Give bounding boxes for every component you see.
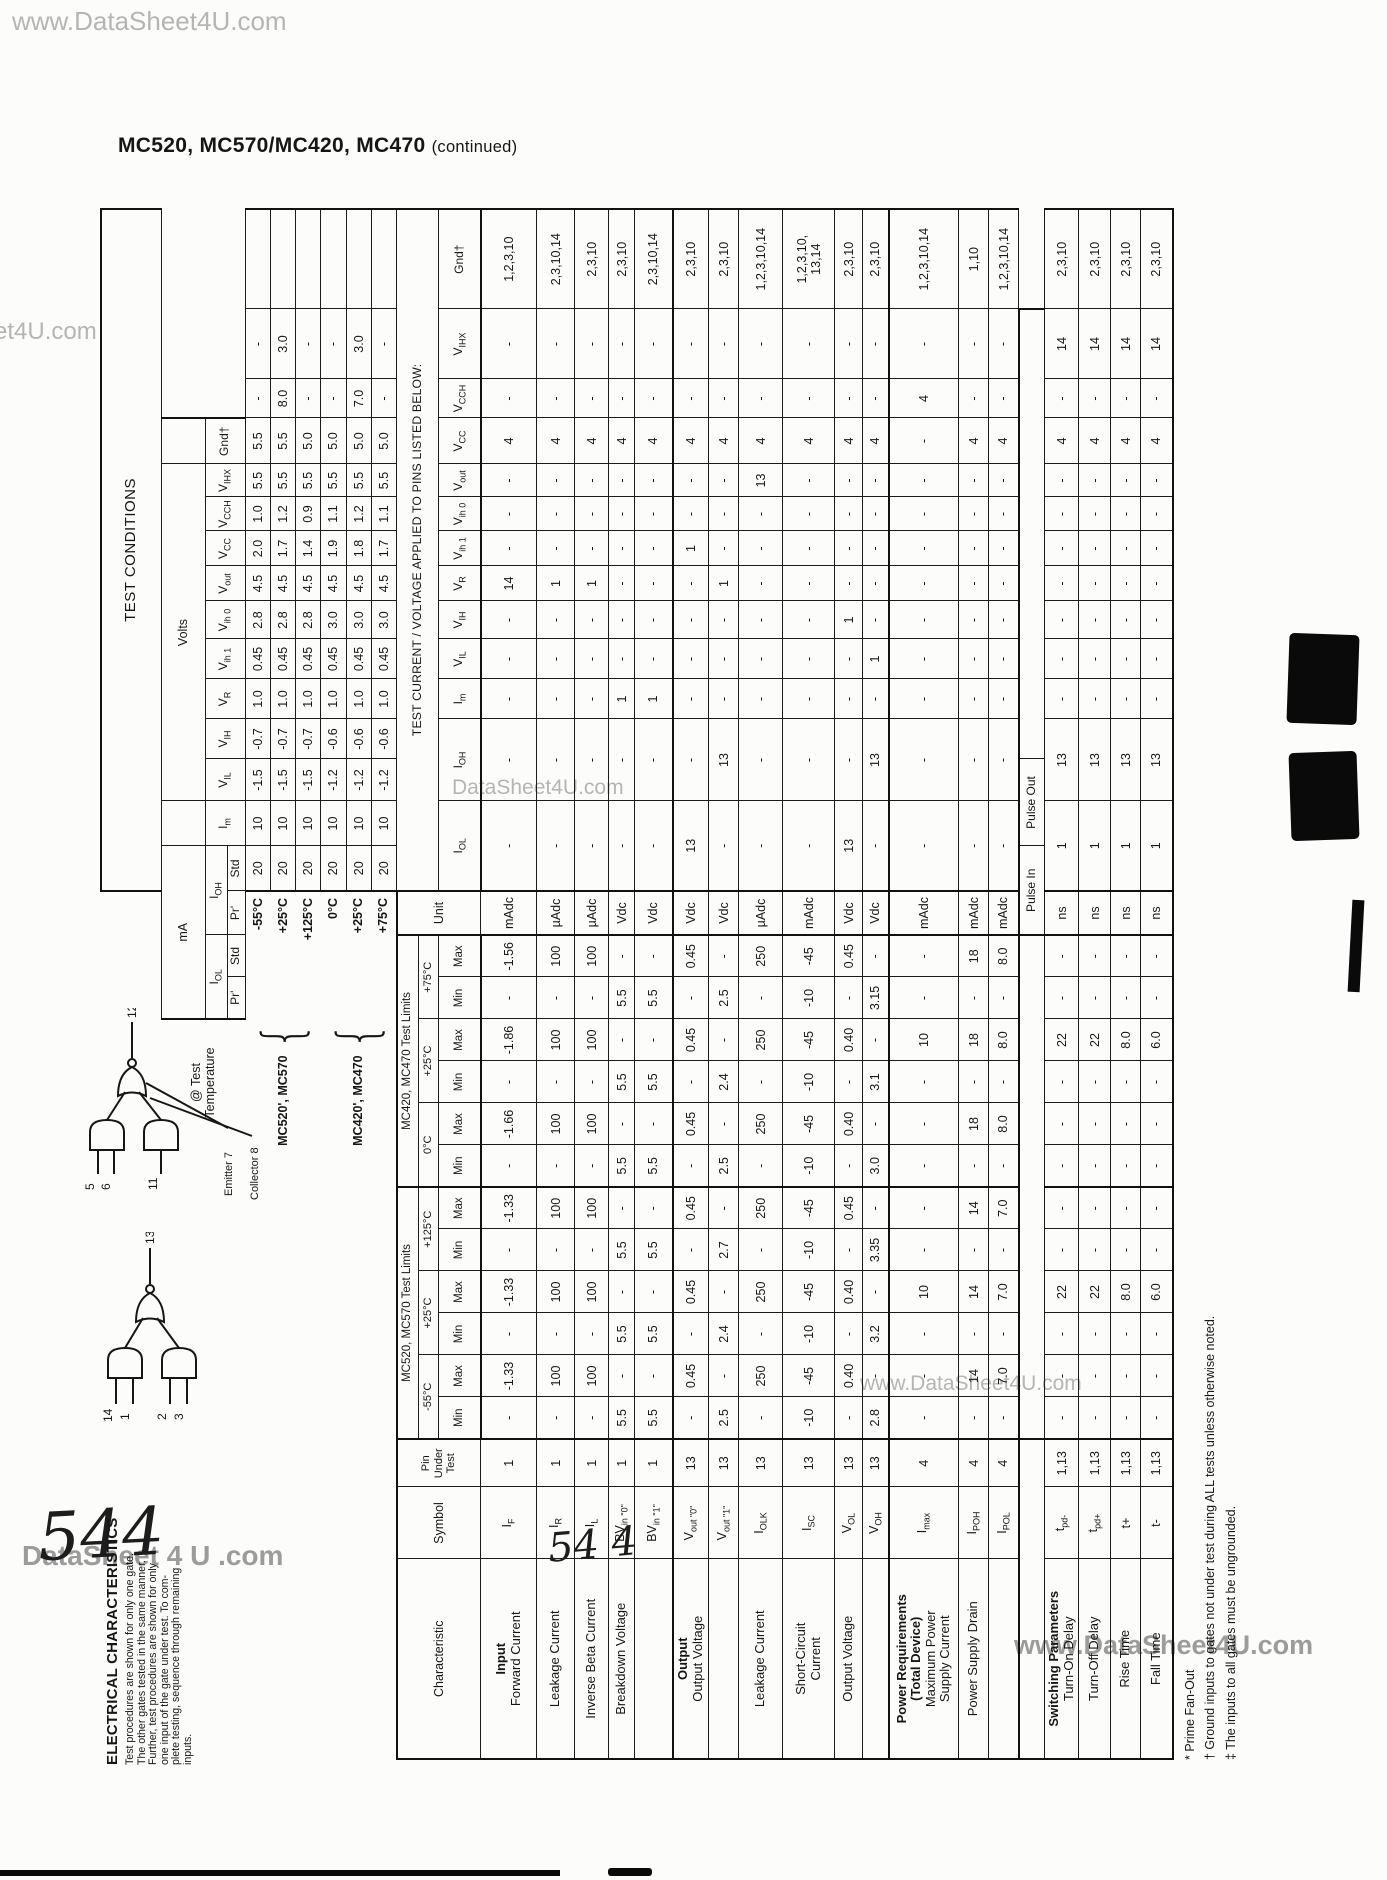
symbol: ISC bbox=[783, 1487, 835, 1559]
max-header: Max bbox=[439, 1019, 481, 1061]
condition-pin-value: - bbox=[739, 601, 783, 639]
limit-value: - bbox=[1079, 1187, 1111, 1229]
condition-pin-value: 1 bbox=[835, 601, 863, 639]
condition-pin-value: 2,3,10 bbox=[835, 209, 863, 309]
condition-value: 0.45 bbox=[321, 639, 346, 679]
condition-pin-value: 13 bbox=[835, 801, 863, 891]
characteristic-name: Output Voltage bbox=[835, 1559, 863, 1759]
condition-pin-value: - bbox=[835, 497, 863, 531]
condition-value: 4.5 bbox=[296, 566, 321, 601]
condition-pin-value: - bbox=[1045, 566, 1079, 601]
banner-blank bbox=[161, 801, 205, 846]
condition-pin-value: - bbox=[889, 464, 959, 497]
limit-value: -45 bbox=[783, 1271, 835, 1313]
characteristic-name bbox=[635, 1559, 673, 1759]
condition-pin-value: - bbox=[889, 566, 959, 601]
limit-value: 100 bbox=[575, 1187, 609, 1229]
limit-value: - bbox=[1141, 1355, 1173, 1397]
unit-value: ns bbox=[1079, 891, 1111, 935]
symbol: VOL bbox=[835, 1487, 863, 1559]
characteristic-name: InputForward Current bbox=[481, 1559, 537, 1759]
condition-pin-value: - bbox=[1045, 679, 1079, 719]
condition-pin-value: - bbox=[835, 379, 863, 418]
condition-pin-value: - bbox=[575, 639, 609, 679]
col-label: VIH bbox=[205, 719, 245, 759]
limit-value: 0.40 bbox=[835, 1019, 863, 1061]
condition-value: 4.5 bbox=[321, 566, 346, 601]
condition-value: 20 bbox=[296, 846, 321, 891]
limit-value: 0.45 bbox=[835, 1187, 863, 1229]
col-label: Vout bbox=[439, 464, 481, 497]
condition-pin-value: - bbox=[835, 639, 863, 679]
blank-area bbox=[245, 1439, 397, 1759]
unit-value: Vdc bbox=[609, 891, 635, 935]
pin-under-test: 1,13 bbox=[1079, 1439, 1111, 1487]
limit-value: - bbox=[1045, 1229, 1079, 1271]
limit-value: 5.5 bbox=[635, 1145, 673, 1187]
limit-value: - bbox=[739, 1229, 783, 1271]
min-header: Min bbox=[439, 1397, 481, 1439]
condition-pin-value: - bbox=[1111, 566, 1141, 601]
limit-value: - bbox=[889, 935, 959, 977]
limit-value: 18 bbox=[959, 1103, 989, 1145]
condition-pin-value: - bbox=[481, 497, 537, 531]
condition-pin-value: - bbox=[959, 601, 989, 639]
condition-value: 20 bbox=[245, 846, 270, 891]
limit-value: - bbox=[1079, 1355, 1111, 1397]
limit-value: 14 bbox=[959, 1355, 989, 1397]
condition-value: 7.0 bbox=[346, 379, 371, 418]
limit-value: - bbox=[1045, 977, 1079, 1019]
condition-pin-value: - bbox=[989, 531, 1019, 566]
limit-value: 22 bbox=[1079, 1019, 1111, 1061]
max-header: Max bbox=[439, 1355, 481, 1397]
condition-value: 3.0 bbox=[346, 601, 371, 639]
condition-pin-value: - bbox=[863, 379, 889, 418]
limit-value: - bbox=[1141, 1229, 1173, 1271]
condition-pin-value: 2,3,10,14 bbox=[635, 209, 673, 309]
footnote: ‡ The inputs to all gates must be ungrou… bbox=[1221, 210, 1242, 1760]
limit-value: - bbox=[1141, 977, 1173, 1019]
condition-pin-value: 1 bbox=[609, 679, 635, 719]
limit-value: - bbox=[635, 1271, 673, 1313]
condition-pin-value: - bbox=[1045, 497, 1079, 531]
condition-pin-value: - bbox=[889, 801, 959, 891]
blank-area bbox=[101, 891, 161, 1759]
condition-pin-value: - bbox=[959, 566, 989, 601]
limit-value: - bbox=[609, 1103, 635, 1145]
applied-note: TEST CURRENT / VOLTAGE APPLIED TO PINS L… bbox=[397, 209, 439, 891]
condition-pin-value: - bbox=[575, 379, 609, 418]
condition-pin-value: - bbox=[959, 464, 989, 497]
condition-pin-value: - bbox=[889, 719, 959, 801]
limit-value: -45 bbox=[783, 1019, 835, 1061]
limit-value: -10 bbox=[783, 1397, 835, 1439]
condition-pin-value: 4 bbox=[1079, 418, 1111, 464]
condition-pin-value: - bbox=[673, 309, 709, 379]
condition-value: 1.7 bbox=[371, 531, 396, 566]
min-header: Min bbox=[439, 977, 481, 1019]
condition-pin-value: - bbox=[1111, 601, 1141, 639]
test-temperature: +25°C bbox=[271, 892, 296, 1019]
condition-value bbox=[346, 209, 371, 309]
condition-value: 1.0 bbox=[245, 497, 270, 531]
std-label: Std bbox=[227, 846, 245, 891]
condition-value: 1.0 bbox=[371, 679, 396, 719]
condition-pin-value: 1 bbox=[709, 566, 739, 601]
unit-value: µAdc bbox=[739, 891, 783, 935]
limit-value: 22 bbox=[1079, 1271, 1111, 1313]
limit-value: 3.35 bbox=[863, 1229, 889, 1271]
unit-value: µAdc bbox=[537, 891, 575, 935]
limit-value: 5.5 bbox=[609, 1145, 635, 1187]
limit-value: - bbox=[889, 1061, 959, 1103]
limit-value: - bbox=[835, 1145, 863, 1187]
test-temperature: 0°C bbox=[321, 892, 346, 1019]
condition-value: 5.5 bbox=[371, 464, 396, 497]
condition-pin-value: - bbox=[783, 531, 835, 566]
limit-value: 100 bbox=[537, 1019, 575, 1061]
limit-value: - bbox=[989, 1061, 1019, 1103]
condition-pin-value: - bbox=[1111, 497, 1141, 531]
col-label: VIHX bbox=[439, 309, 481, 379]
col-label: Vih 0 bbox=[205, 601, 245, 639]
condition-pin-value: - bbox=[739, 309, 783, 379]
ma-banner: mA bbox=[161, 846, 205, 1019]
condition-value: 5.0 bbox=[321, 418, 346, 464]
condition-pin-value: - bbox=[889, 639, 959, 679]
condition-pin-value: 4 bbox=[709, 418, 739, 464]
condition-pin-value: - bbox=[481, 679, 537, 719]
pin-under-test: 4 bbox=[989, 1439, 1019, 1487]
min-header: Min bbox=[439, 1145, 481, 1187]
condition-pin-value: 2,3,10 bbox=[1079, 209, 1111, 309]
condition-pin-value: - bbox=[1111, 464, 1141, 497]
limit-value: - bbox=[609, 1355, 635, 1397]
condition-pin-value: - bbox=[989, 601, 1019, 639]
col-label: VCC bbox=[205, 531, 245, 566]
condition-pin-value: - bbox=[673, 679, 709, 719]
footnote: † Ground inputs to gates not under test … bbox=[1200, 210, 1221, 1760]
condition-value: 10 bbox=[371, 801, 396, 846]
condition-value: 5.5 bbox=[296, 464, 321, 497]
limit-value: 3.15 bbox=[863, 977, 889, 1019]
condition-value: 5.5 bbox=[346, 464, 371, 497]
unit-value: mAdc bbox=[783, 891, 835, 935]
limit-value: - bbox=[889, 977, 959, 1019]
limit-value: - bbox=[959, 1229, 989, 1271]
col-label: Im bbox=[439, 679, 481, 719]
condition-value: 5.5 bbox=[270, 418, 295, 464]
condition-pin-value: - bbox=[575, 801, 609, 891]
limit-value: 2.5 bbox=[709, 1145, 739, 1187]
limit-value: 100 bbox=[575, 1355, 609, 1397]
unit-value: Vdc bbox=[673, 891, 709, 935]
characteristic-name: Power Supply Drain bbox=[959, 1559, 989, 1759]
condition-pin-value: 13 bbox=[739, 464, 783, 497]
limit-value: - bbox=[835, 1061, 863, 1103]
limit-value: 6.0 bbox=[1141, 1019, 1173, 1061]
condition-value: 5.5 bbox=[245, 418, 270, 464]
condition-pin-value: 2,3,10 bbox=[1045, 209, 1079, 309]
condition-pin-value: - bbox=[673, 719, 709, 801]
limit-value: 8.0 bbox=[989, 1019, 1019, 1061]
std-label: Std bbox=[227, 935, 245, 977]
condition-pin-value: 1 bbox=[635, 679, 673, 719]
condition-value: 1.0 bbox=[346, 679, 371, 719]
col-label: Vih 0 bbox=[439, 497, 481, 531]
max-header: Max bbox=[439, 1187, 481, 1229]
limit-value: - bbox=[1045, 1397, 1079, 1439]
scan-artifact-blob bbox=[1288, 751, 1359, 841]
limit-value: - bbox=[989, 1313, 1019, 1355]
condition-value bbox=[296, 209, 321, 309]
condition-value: 0.45 bbox=[296, 639, 321, 679]
condition-pin-value: - bbox=[739, 719, 783, 801]
limit-value: 100 bbox=[537, 935, 575, 977]
limit-value: - bbox=[739, 1145, 783, 1187]
limit-value: - bbox=[575, 1313, 609, 1355]
condition-value: 0.45 bbox=[346, 639, 371, 679]
condition-pin-value: 1 bbox=[1111, 801, 1141, 891]
limit-value: - bbox=[1111, 1397, 1141, 1439]
pin-under-test: 1,13 bbox=[1045, 1439, 1079, 1487]
col-label-iol: IOL bbox=[439, 801, 481, 891]
limit-value: 5.5 bbox=[609, 1061, 635, 1103]
condition-value: 2.0 bbox=[245, 531, 270, 566]
pin-under-test: 4 bbox=[959, 1439, 989, 1487]
condition-pin-value: - bbox=[889, 531, 959, 566]
condition-value: - bbox=[371, 379, 396, 418]
limit-value: 250 bbox=[739, 1187, 783, 1229]
limit-value: -45 bbox=[783, 935, 835, 977]
condition-pin-value: - bbox=[1079, 379, 1111, 418]
limit-value: 5.5 bbox=[635, 977, 673, 1019]
condition-value: 10 bbox=[346, 801, 371, 846]
col-label: VIL bbox=[439, 639, 481, 679]
pin-under-test: 13 bbox=[783, 1439, 835, 1487]
condition-pin-value: 4 bbox=[575, 418, 609, 464]
scan-artifact-edge-line bbox=[0, 1870, 560, 1876]
unit-value: ns bbox=[1111, 891, 1141, 935]
condition-pin-value: - bbox=[1141, 379, 1173, 418]
col-label: VCC bbox=[439, 418, 481, 464]
limit-value: - bbox=[673, 1229, 709, 1271]
limit-value: 5.5 bbox=[609, 1229, 635, 1271]
condition-pin-value: 14 bbox=[481, 566, 537, 601]
limit-value: 0.45 bbox=[673, 1187, 709, 1229]
condition-pin-value: - bbox=[783, 719, 835, 801]
condition-pin-value: - bbox=[709, 309, 739, 379]
condition-pin-value: - bbox=[575, 497, 609, 531]
condition-value: 5.0 bbox=[346, 418, 371, 464]
unit-header: Unit bbox=[397, 891, 481, 935]
condition-value: 3.0 bbox=[346, 309, 371, 379]
limit-value: - bbox=[575, 1061, 609, 1103]
condition-pin-value: 2,3,10,14 bbox=[537, 209, 575, 309]
condition-pin-value: - bbox=[783, 801, 835, 891]
condition-pin-value: - bbox=[1141, 679, 1173, 719]
condition-pin-value: - bbox=[609, 379, 635, 418]
test-temperature: +125°C bbox=[296, 892, 321, 1019]
limit-value: 100 bbox=[575, 1103, 609, 1145]
col-label-iol: IOL bbox=[205, 935, 227, 1019]
condition-pin-value: - bbox=[1079, 679, 1111, 719]
limit-value: 10 bbox=[889, 1019, 959, 1061]
limit-value: 250 bbox=[739, 1019, 783, 1061]
scan-artifact-blob bbox=[1286, 633, 1359, 725]
condition-pin-value: - bbox=[959, 309, 989, 379]
condition-pin-value: - bbox=[673, 566, 709, 601]
limit-value: - bbox=[1045, 935, 1079, 977]
limit-value: - bbox=[537, 1061, 575, 1103]
min-header: Min bbox=[439, 1229, 481, 1271]
limit-value: -1.33 bbox=[481, 1355, 537, 1397]
condition-pin-value: - bbox=[959, 497, 989, 531]
limit-value: -1.86 bbox=[481, 1019, 537, 1061]
limit-value: - bbox=[989, 977, 1019, 1019]
characteristic-name: Turn-Off Delay bbox=[1079, 1559, 1111, 1759]
limit-value: - bbox=[1045, 1313, 1079, 1355]
symbol: tpd+ bbox=[1079, 1487, 1111, 1559]
limit-value: 100 bbox=[537, 1355, 575, 1397]
limit-value: - bbox=[635, 1019, 673, 1061]
limit-value: -1.33 bbox=[481, 1187, 537, 1229]
limit-value: 100 bbox=[537, 1187, 575, 1229]
condition-pin-value: - bbox=[889, 418, 959, 464]
limit-value: 0.45 bbox=[673, 1355, 709, 1397]
limit-value: 8.0 bbox=[989, 935, 1019, 977]
condition-value: 3.0 bbox=[321, 601, 346, 639]
max-header: Max bbox=[439, 1103, 481, 1145]
col-label: VIHX bbox=[205, 464, 245, 497]
limit-value: 5.5 bbox=[635, 1229, 673, 1271]
limit-value: - bbox=[863, 1019, 889, 1061]
condition-pin-value: 1,2,3,10,14 bbox=[889, 209, 959, 309]
page-title-main: MC520, MC570/MC420, MC470 bbox=[118, 134, 425, 157]
condition-value: 20 bbox=[346, 846, 371, 891]
condition-pin-value: - bbox=[959, 801, 989, 891]
condition-pin-value: 1 bbox=[1045, 801, 1079, 891]
limit-value: 18 bbox=[959, 1019, 989, 1061]
condition-pin-value: - bbox=[959, 531, 989, 566]
condition-pin-value: - bbox=[959, 639, 989, 679]
condition-pin-value: - bbox=[1111, 639, 1141, 679]
limit-value: - bbox=[835, 1229, 863, 1271]
limit-value: - bbox=[1045, 1145, 1079, 1187]
condition-pin-value: 14 bbox=[1111, 309, 1141, 379]
condition-value: -1.5 bbox=[296, 759, 321, 801]
col-label: Vih 1 bbox=[205, 639, 245, 679]
condition-pin-value: - bbox=[1111, 379, 1141, 418]
unit-value: mAdc bbox=[481, 891, 537, 935]
limit-value: - bbox=[709, 1187, 739, 1229]
limit-value: - bbox=[1079, 977, 1111, 1019]
condition-value: 4.5 bbox=[371, 566, 396, 601]
limit-value: - bbox=[863, 1103, 889, 1145]
condition-pin-value: - bbox=[673, 639, 709, 679]
condition-pin-value: - bbox=[481, 639, 537, 679]
volts-banner: Volts bbox=[161, 464, 205, 801]
limit-value: - bbox=[739, 977, 783, 1019]
limit-value: 0.45 bbox=[835, 935, 863, 977]
condition-pin-value: - bbox=[481, 719, 537, 801]
condition-value: -1.2 bbox=[321, 759, 346, 801]
limit-value: - bbox=[889, 1355, 959, 1397]
condition-pin-value: - bbox=[889, 679, 959, 719]
condition-value: 4.5 bbox=[270, 566, 295, 601]
condition-pin-value: - bbox=[709, 379, 739, 418]
limit-value: - bbox=[1045, 1355, 1079, 1397]
limit-value: 3.2 bbox=[863, 1313, 889, 1355]
condition-pin-value: - bbox=[889, 497, 959, 531]
condition-value: 20 bbox=[321, 846, 346, 891]
condition-value: 10 bbox=[270, 801, 295, 846]
condition-pin-value: 4 bbox=[635, 418, 673, 464]
condition-pin-value: 4 bbox=[1045, 418, 1079, 464]
limit-value: - bbox=[1079, 1103, 1111, 1145]
condition-value: -0.7 bbox=[270, 719, 295, 759]
condition-pin-value: - bbox=[537, 309, 575, 379]
mc420-limits-header: MC420, MC470 Test Limits bbox=[397, 935, 419, 1187]
condition-pin-value: 4 bbox=[673, 418, 709, 464]
limit-temp-header: -55°C bbox=[419, 1355, 439, 1439]
limit-value: 0.45 bbox=[673, 1019, 709, 1061]
limit-value: - bbox=[1111, 1145, 1141, 1187]
limit-value: - bbox=[959, 1313, 989, 1355]
limit-value: -45 bbox=[783, 1355, 835, 1397]
condition-pin-value: 4 bbox=[1111, 418, 1141, 464]
limit-value: 2.7 bbox=[709, 1229, 739, 1271]
condition-value: 0.45 bbox=[245, 639, 270, 679]
limit-value: - bbox=[739, 1061, 783, 1103]
condition-pin-value: 1 bbox=[537, 566, 575, 601]
condition-pin-value: - bbox=[783, 464, 835, 497]
col-label-ioh: IOH bbox=[205, 846, 227, 935]
limit-value: 8.0 bbox=[1111, 1271, 1141, 1313]
condition-pin-value: - bbox=[537, 497, 575, 531]
limit-temp-header: +125°C bbox=[419, 1187, 439, 1271]
limit-value: 10 bbox=[889, 1271, 959, 1313]
limit-value: 250 bbox=[739, 1103, 783, 1145]
condition-value: 4.5 bbox=[245, 566, 270, 601]
limit-value: - bbox=[863, 1271, 889, 1313]
condition-pin-value: - bbox=[739, 639, 783, 679]
characteristic-name: Leakage Current bbox=[739, 1559, 783, 1759]
condition-value: 8.0 bbox=[270, 379, 295, 418]
unit-value: mAdc bbox=[989, 891, 1019, 935]
condition-value: 1.2 bbox=[346, 497, 371, 531]
condition-value: -0.6 bbox=[321, 719, 346, 759]
symbol: t+ bbox=[1111, 1487, 1141, 1559]
condition-pin-value: - bbox=[989, 719, 1019, 801]
condition-pin-value: - bbox=[709, 601, 739, 639]
blank-cell bbox=[1019, 1439, 1045, 1759]
limit-value: 14 bbox=[959, 1271, 989, 1313]
limit-value: - bbox=[1141, 1145, 1173, 1187]
condition-pin-value: - bbox=[1111, 679, 1141, 719]
condition-pin-value: - bbox=[635, 719, 673, 801]
characteristic-name: Fall Time bbox=[1141, 1559, 1173, 1759]
limit-value: 0.45 bbox=[673, 1103, 709, 1145]
condition-pin-value: 14 bbox=[1045, 309, 1079, 379]
limit-value: - bbox=[1141, 935, 1173, 977]
limit-value: - bbox=[1141, 1061, 1173, 1103]
condition-value: 2.8 bbox=[296, 601, 321, 639]
limit-value: - bbox=[889, 1229, 959, 1271]
condition-pin-value: 13 bbox=[863, 719, 889, 801]
col-label: Vih 1 bbox=[439, 531, 481, 566]
